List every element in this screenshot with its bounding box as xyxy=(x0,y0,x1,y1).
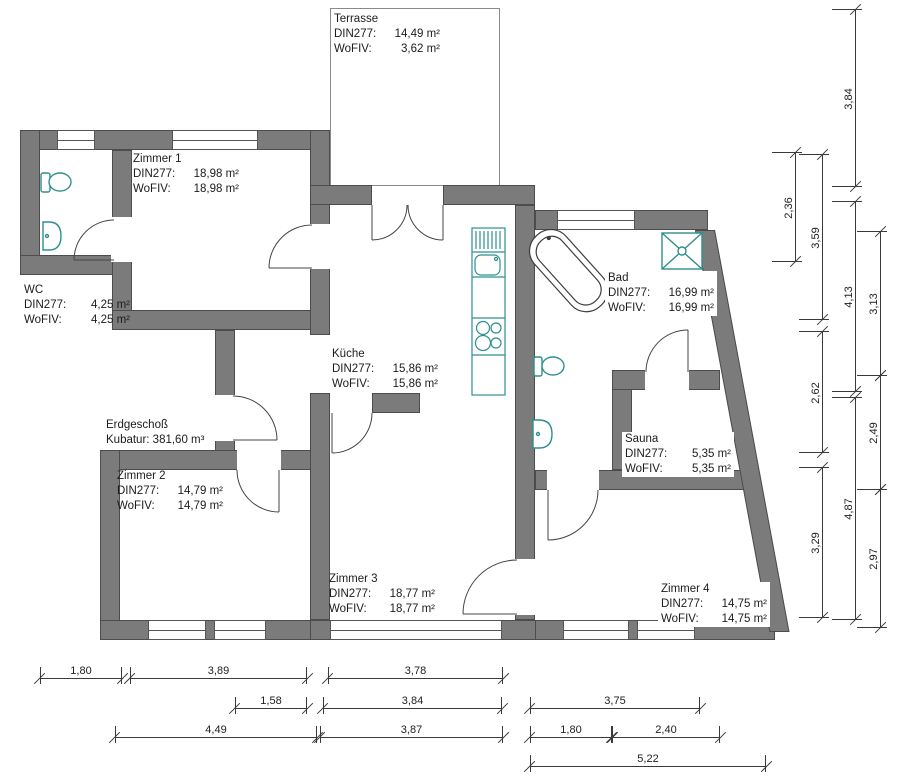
bathtub-icon xyxy=(521,221,616,320)
dimension-label: 2,49 xyxy=(868,422,880,443)
shower-icon xyxy=(662,233,702,269)
dimension-label: 1,58 xyxy=(260,695,281,707)
dimension-label: 1,80 xyxy=(560,724,581,736)
door-arc-zimmer1 xyxy=(269,225,312,268)
dimension-label: 2,97 xyxy=(868,548,880,569)
dimension-label: 4,13 xyxy=(843,286,855,307)
dish-rack-icon xyxy=(476,231,500,249)
dimension-label: 4,49 xyxy=(205,724,226,736)
dimension-vertical: 2,97 xyxy=(880,490,881,628)
door-arc-sauna xyxy=(646,330,688,372)
door-arc-terrace-right xyxy=(408,205,443,240)
doors-and-fixtures-layer xyxy=(0,0,900,776)
dimension-horizontal: 4,49 xyxy=(115,737,317,738)
room-name: Zimmer 2 xyxy=(117,469,223,484)
room-name: Sauna xyxy=(625,432,731,447)
dimension-label: 3,75 xyxy=(604,695,625,707)
wc-toilet-icon xyxy=(41,173,71,192)
dimension-vertical: 4,87 xyxy=(855,398,856,620)
dimension-label: 3,87 xyxy=(401,724,422,736)
room-name: WC xyxy=(24,283,130,298)
dimension-label: 2,62 xyxy=(810,382,822,403)
dimension-vertical: 3,13 xyxy=(880,232,881,376)
door-arc-zimmer2 xyxy=(237,470,279,512)
bad-toilet-icon xyxy=(534,357,564,376)
dimension-horizontal: 3,89 xyxy=(130,678,307,679)
dimension-label: 3,13 xyxy=(868,293,880,314)
dimension-vertical: 2,62 xyxy=(822,332,823,453)
dimension-horizontal: 2,40 xyxy=(612,737,720,738)
room-label-zimmer4: Zimmer 4 DIN277:14,75 m² WoFIV:14,75 m² xyxy=(658,582,770,627)
dimension-vertical: 2,49 xyxy=(880,376,881,490)
dimension-label: 3,89 xyxy=(208,665,229,677)
dimension-label: 3,29 xyxy=(810,532,822,553)
room-label-zimmer3: Zimmer 3 DIN277:18,77 m² WoFIV:18,77 m² xyxy=(329,572,435,617)
floor-kubatur: Kubatur: 381,60 m³ xyxy=(106,433,204,448)
door-arc-entrance xyxy=(233,396,277,440)
floor-name: Erdgeschoß xyxy=(106,418,204,433)
dimension-label: 3,59 xyxy=(810,227,822,248)
room-label-bad: Bad DIN277:16,99 m² WoFIV:16,99 m² xyxy=(605,271,717,316)
dimension-horizontal: 1,58 xyxy=(235,708,307,709)
door-arc-kueche xyxy=(332,413,372,453)
room-name: Bad xyxy=(608,271,714,286)
floor-info-label: Erdgeschoß Kubatur: 381,60 m³ xyxy=(106,418,204,448)
dimension-horizontal: 3,75 xyxy=(530,708,700,709)
room-name: Küche xyxy=(332,347,438,362)
dimension-vertical: 2,36 xyxy=(795,153,796,262)
dimension-label: 3,78 xyxy=(405,665,426,677)
dimension-label: 3,84 xyxy=(843,88,855,109)
dimension-horizontal: 3,84 xyxy=(323,708,502,709)
dimension-vertical: 4,13 xyxy=(855,202,856,392)
floor-plan: Terrasse DIN277:14,49 m² WoFIV:3,62 m² Z… xyxy=(0,0,900,776)
room-label-zimmer1: Zimmer 1 DIN277:18,98 m² WoFIV:18,98 m² xyxy=(133,152,239,197)
dimension-label: 1,80 xyxy=(70,665,91,677)
dimension-label: 2,36 xyxy=(783,197,795,218)
room-label-terrasse: Terrasse DIN277:14,49 m² WoFIV:3,62 m² xyxy=(334,12,440,57)
bad-sink-icon xyxy=(533,420,552,448)
room-label-zimmer2: Zimmer 2 DIN277:14,79 m² WoFIV:14,79 m² xyxy=(117,469,223,514)
room-name: Terrasse xyxy=(334,12,440,27)
stove-icon xyxy=(476,322,502,351)
kitchen-sink-icon xyxy=(475,255,500,275)
dimension-label: 5,22 xyxy=(637,753,658,765)
door-arc-terrace-left xyxy=(372,205,407,240)
dimension-label: 4,87 xyxy=(843,498,855,519)
dimension-vertical: 3,29 xyxy=(822,468,823,618)
kitchen-counter xyxy=(472,228,505,395)
dimension-vertical: 3,84 xyxy=(855,10,856,187)
dimension-vertical: 3,59 xyxy=(822,155,823,320)
room-label-sauna: Sauna DIN277:5,35 m² WoFIV:5,35 m² xyxy=(622,432,734,477)
door-arc-wc xyxy=(74,220,114,260)
room-name: Zimmer 3 xyxy=(329,572,435,587)
room-label-wc: WC DIN277:4,25 m² WoFIV:4,25 m² xyxy=(24,283,130,328)
dimension-horizontal: 3,87 xyxy=(320,737,503,738)
dimension-horizontal: 1,80 xyxy=(40,678,122,679)
dimension-horizontal: 3,78 xyxy=(328,678,503,679)
room-name: Zimmer 4 xyxy=(661,582,767,597)
dimension-label: 3,84 xyxy=(402,695,423,707)
door-arc-zimmer4 xyxy=(548,490,598,540)
room-label-kueche: Küche DIN277:15,86 m² WoFIV:15,86 m² xyxy=(332,347,438,392)
dimension-horizontal: 5,22 xyxy=(530,766,766,767)
wc-sink-icon xyxy=(43,222,61,250)
room-name: Zimmer 1 xyxy=(133,152,239,167)
door-arc-zimmer3 xyxy=(463,560,517,614)
dimension-label: 2,40 xyxy=(655,724,676,736)
dimension-horizontal: 1,80 xyxy=(530,737,612,738)
